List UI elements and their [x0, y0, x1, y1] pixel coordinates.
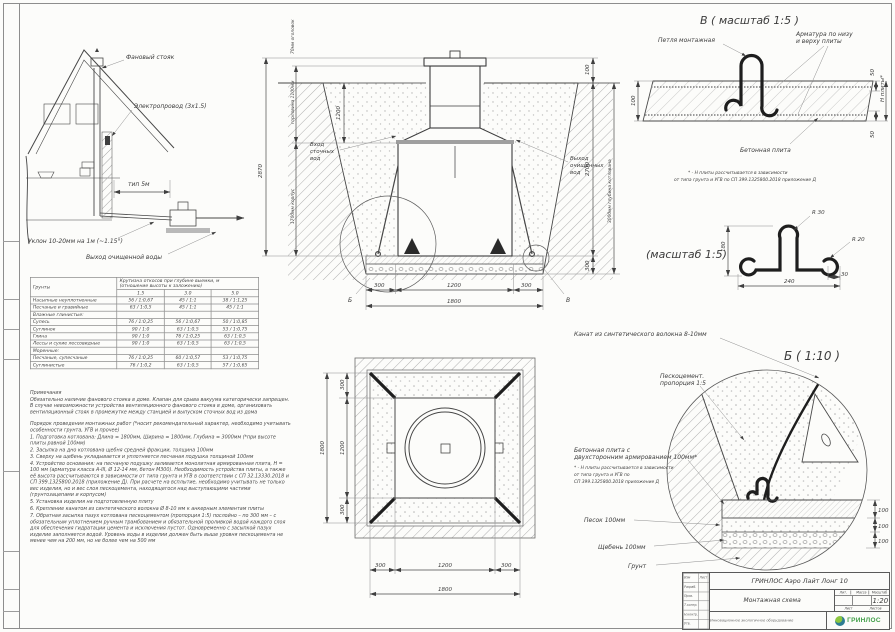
notes-wrap: Примечания Обязательно наличие фанового … — [30, 390, 292, 622]
table-row: Насыпные неуплотненные56 / 1:0,6745 / 1:… — [30, 297, 258, 304]
callout-v: В — [566, 297, 570, 304]
excavation-section-drawing: Б В 2870 70мм оголовок горловина 1100мм … — [248, 28, 633, 320]
plan-view-drawing: 300 1200 300 1800 300 1200 300 1800 — [295, 348, 595, 618]
label-loop: Петля монтажная — [658, 37, 715, 44]
station-tank — [396, 51, 514, 256]
svg-text:вод: вод — [570, 170, 581, 176]
dim-b300b: 300 — [521, 283, 532, 289]
table-row: Песчаные, супесчаные76 / 1:0,2560 / 1:0,… — [30, 354, 258, 361]
dim-2870: 2870 — [258, 164, 264, 178]
label-span: тип 5м — [128, 181, 150, 188]
dim-b1800: 1800 — [447, 299, 461, 305]
svg-text:Вход: Вход — [310, 142, 324, 148]
notes-block: Примечания Обязательно наличие фанового … — [30, 390, 292, 544]
sand-layer — [722, 518, 874, 532]
dim-1200: 1200 — [336, 106, 342, 120]
slab-square — [395, 398, 495, 498]
svg-text:вод: вод — [310, 156, 321, 162]
soil-col-header: Грунты — [30, 277, 117, 296]
tank-flange — [396, 140, 514, 144]
svg-text:300: 300 — [340, 504, 346, 515]
table-row: Лессы и сухие лессовидные90 / 1:063 / 1:… — [30, 340, 258, 347]
dim-head: 70мм оголовок — [290, 19, 296, 54]
procedure-item: 3. Сверху на щебень укладывается и уплот… — [30, 454, 292, 460]
svg-text:50: 50 — [870, 69, 876, 76]
callout-b: Б — [348, 297, 352, 304]
tank-lid — [424, 58, 486, 66]
notes-paragraph: Обязательно наличие фанового стояка в до… — [30, 397, 292, 416]
vent-stack — [91, 48, 112, 218]
label-cable: Электропровод (3х1.5) — [133, 103, 207, 110]
svg-text:1200: 1200 — [340, 441, 346, 455]
svg-text:Арматура по низу: Арматура по низу — [795, 31, 853, 38]
table-row: Глина90 / 1:076 / 1:0,2563 / 1:0,5 — [30, 333, 258, 340]
svg-text:Выход: Выход — [570, 156, 589, 162]
soil-slope-table: Грунты Крутизна откосов при глубине выем… — [30, 277, 259, 369]
svg-text:100: 100 — [878, 508, 889, 514]
slab-layer — [722, 500, 874, 518]
soil-table-wrap: Грунты Крутизна откосов при глубине выем… — [30, 277, 266, 389]
label-rope: Канат из синтетического волокна 8-10мм — [574, 331, 707, 338]
svg-text:1200: 1200 — [438, 563, 452, 569]
house-roof — [28, 50, 174, 154]
label-gravel: Щебень 100мм — [598, 544, 646, 551]
detail-b-content — [664, 367, 876, 574]
table-row: Песчаные и гравийные63 / 1:0,545 / 1:145… — [30, 304, 258, 311]
svg-text:100: 100 — [631, 95, 637, 106]
svg-text:100: 100 — [878, 524, 889, 530]
svg-text:30: 30 — [841, 272, 848, 278]
frame-left-strip — [3, 3, 20, 629]
detail-b-title: Б ( 1:10 ) — [784, 349, 840, 363]
dim-pit-depth: 3000мм глубина котлована — [607, 159, 613, 223]
drawing-sheet: Фановый стояк Электропровод (3х1.5) тип … — [0, 0, 895, 632]
svg-text:1800: 1800 — [320, 441, 326, 455]
hook-title: (масштаб 1:5) — [646, 248, 727, 261]
house-section-drawing: Фановый стояк Электропровод (3х1.5) тип … — [22, 34, 262, 264]
detail-v-note2: от типа грунта и УГВ по СП 399.1325800.2… — [674, 177, 816, 183]
svg-text:R 30: R 30 — [812, 210, 825, 216]
svg-text:300: 300 — [340, 379, 346, 390]
cable-box — [105, 136, 110, 145]
table-row: Моренные: — [30, 347, 258, 354]
gravel-layer — [366, 264, 543, 274]
procedure-item: 6. Крепление канатом из синтетического в… — [30, 506, 292, 512]
label-slope: Уклон 10-20мм на 1м (~1.15°) — [28, 238, 123, 245]
svg-text:пропорция 1:5: пропорция 1:5 — [660, 380, 706, 387]
concrete-slab — [366, 256, 543, 264]
install-procedure-heading: Порядок проведения монтажных работ (*нос… — [30, 421, 292, 433]
scale-value: 1:20 — [872, 596, 889, 605]
svg-text:1800: 1800 — [438, 587, 452, 593]
table-row: Влажные глинистые: — [30, 311, 258, 318]
hook-profile-drawing: (масштаб 1:5) 180 240 30 R 30 R 20 — [638, 196, 890, 296]
procedure-item: 4. Устройство основания: на песчаную под… — [30, 461, 292, 498]
slab-with-loop — [643, 56, 873, 122]
svg-text:Пескоцемент.: Пескоцемент. — [660, 373, 704, 380]
gravel-layer — [722, 532, 874, 548]
company-logo: ГРИНЛОС — [827, 612, 889, 629]
procedure-item: 2. Засыпка на дно котлована щебня средне… — [30, 447, 292, 453]
dim-300: 300 — [585, 260, 591, 271]
label-clean-water-outlet: Выход очищенной воды — [86, 254, 162, 261]
svg-text:100: 100 — [878, 539, 889, 545]
grinlos-logo-icon — [835, 616, 845, 626]
procedure-item: 1. Подготовка котлована: Длина = 1800мм,… — [30, 434, 292, 446]
svg-text:50: 50 — [870, 131, 876, 138]
label-vent-stack: Фановый стояк — [126, 54, 175, 61]
svg-text:300: 300 — [375, 563, 386, 569]
svg-text:180: 180 — [721, 241, 727, 252]
svg-text:R 20: R 20 — [852, 237, 865, 243]
dim-b1200: 1200 — [447, 283, 461, 289]
grinlos-logo-text: ГРИНЛОС — [847, 617, 881, 624]
table-row: Суглинок90 / 1:063 / 1:0,553 / 1:0,75 — [30, 326, 258, 333]
svg-text:сточных: сточных — [310, 149, 335, 155]
dim-body: 1700мм корпус — [290, 188, 296, 224]
dim-b300a: 300 — [374, 283, 385, 289]
document-name: Монтажная схема — [710, 590, 835, 611]
signature-grid: Изм Лист № докум. Подп. Дата Разраб. Про… — [683, 573, 710, 629]
notes-heading: Примечания — [30, 390, 292, 396]
dim-neck: горловина 1100мм — [290, 80, 296, 124]
hook-shape — [741, 226, 838, 275]
detail-v-drawing: В ( масштаб 1:5 ) Петля монтажная Армату… — [628, 6, 890, 194]
lid-knob — [450, 51, 460, 58]
hook-dimensions: 180 240 30 R 30 R 20 — [721, 210, 865, 290]
svg-text:и верху плиты: и верху плиты — [796, 38, 842, 45]
company-tagline: Инновационное экологичное оборудование — [710, 612, 827, 629]
table-row: Суглинистые76 / 1:0,263 / 1:0,557 / 1:0,… — [30, 362, 258, 369]
detail-b-drawing: Б ( 1:10 ) 100 100 100 Кана — [572, 322, 890, 570]
product-name: ГРИНЛОС Аэро Лайт Лонг 10 — [710, 573, 889, 590]
svg-text:Н плиты*: Н плиты* — [880, 75, 886, 102]
svg-text:240: 240 — [784, 279, 795, 285]
detail-b-dimensions: 100 100 100 — [866, 500, 889, 548]
procedure-item: 5. Установка изделия на подготовленную п… — [30, 499, 292, 505]
procedure-item: 7. Обратная засыпка пазух котлована песк… — [30, 513, 292, 544]
title-block: Изм Лист № докум. Подп. Дата Разраб. Про… — [682, 572, 890, 630]
outlet-pipe-run — [100, 202, 244, 233]
svg-text:очищенных: очищенных — [570, 163, 604, 169]
label-soil: Грунт — [628, 563, 647, 570]
detail-v-note1: * - Н плиты рассчитывается в зависимости — [688, 170, 788, 176]
table-row: Супесь76 / 1:0,2556 / 1:0,6750 / 1:0,85 — [30, 318, 258, 325]
svg-text:300: 300 — [501, 563, 512, 569]
scale-block: Лит. Масса Масштаб 1:20 Лист Листов — [835, 590, 889, 611]
dim-100: 100 — [585, 64, 591, 75]
detail-v-title: В ( масштаб 1:5 ) — [700, 14, 799, 27]
label-slab: Бетонная плита — [740, 147, 791, 154]
